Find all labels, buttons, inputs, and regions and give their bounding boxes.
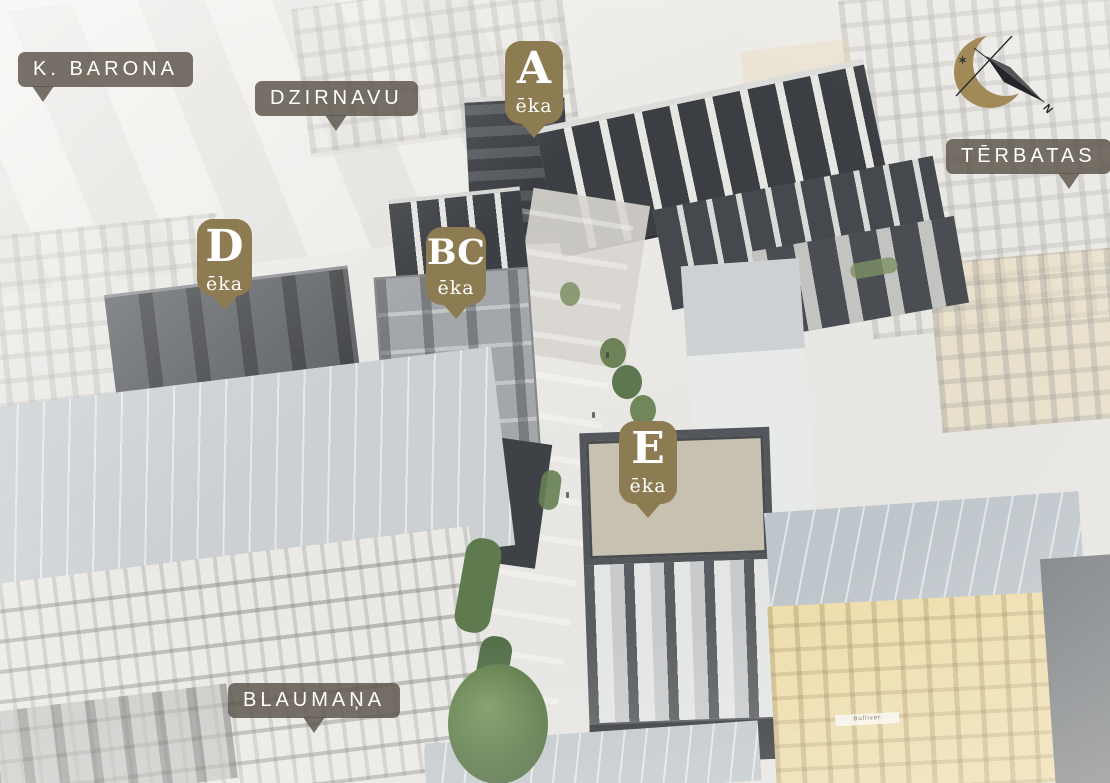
- large-tree: [448, 664, 548, 783]
- label-pointer: [303, 717, 325, 733]
- tree: [560, 282, 580, 306]
- building-sublabel: ēka: [505, 95, 563, 117]
- tree: [612, 365, 642, 399]
- crescent-compass-icon: ✶ N: [948, 14, 1063, 114]
- building-letter: A: [505, 45, 563, 93]
- label-pointer: [1058, 173, 1080, 189]
- building-marker-d[interactable]: D ēka: [197, 219, 252, 296]
- street-label-blaumana: BLAUMAŅA: [228, 683, 400, 718]
- building-sublabel: ēka: [426, 277, 486, 299]
- pedestrian-dot: [592, 412, 595, 418]
- street-label-text: TĒRBATAS: [961, 145, 1096, 167]
- building-letter: BC: [426, 231, 486, 275]
- street-label-text: DZIRNAVU: [270, 87, 403, 109]
- marker-pointer: [521, 123, 547, 138]
- building-sublabel: ēka: [619, 475, 677, 497]
- label-pointer: [325, 115, 347, 131]
- street-label-text: K. BARONA: [33, 58, 178, 80]
- building-letter: D: [197, 223, 252, 271]
- compass-crescent: [954, 36, 1026, 108]
- street-label-dzirnavu: DZIRNAVU: [255, 81, 418, 116]
- label-pointer: [32, 86, 54, 102]
- street-label-terbatas: TĒRBATAS: [946, 139, 1110, 174]
- marker-pointer: [212, 295, 238, 310]
- marker-pointer: [635, 503, 661, 518]
- aerial-map: Bulliver K. BARONA DZIRNAVU TĒRBATAS BLA…: [0, 0, 1110, 783]
- pedestrian-dot: [606, 352, 609, 358]
- compass-north-label: N: [1040, 102, 1054, 114]
- street-label-k-barona: K. BARONA: [18, 52, 193, 87]
- building-marker-bc[interactable]: BC ēka: [426, 227, 486, 305]
- building-marker-e[interactable]: E ēka: [619, 421, 677, 504]
- building-letter: E: [619, 425, 677, 473]
- compass-star-icon: ✶: [958, 55, 967, 67]
- building-e-facade: [584, 559, 779, 724]
- building-e: [579, 427, 780, 765]
- street-label-text: BLAUMAŅA: [243, 689, 385, 711]
- tree: [600, 338, 626, 368]
- pedestrian-dot: [566, 492, 569, 498]
- storefront-sign: Bulliver: [835, 712, 899, 726]
- building-marker-a[interactable]: A ēka: [505, 41, 563, 124]
- building-sublabel: ēka: [197, 273, 252, 295]
- marker-pointer: [443, 304, 469, 319]
